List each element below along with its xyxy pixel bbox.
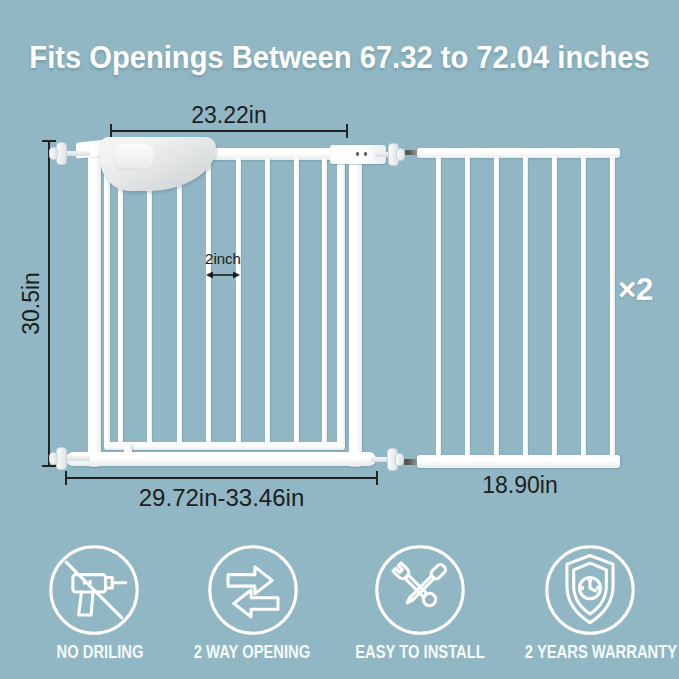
door-bottom-rail [104,442,345,450]
gate-bar [147,158,152,445]
latch-button [114,144,154,170]
gate-height-label: 30.5in [18,249,45,359]
extension-bar [465,156,470,458]
tick-right [346,124,348,138]
tick-bottom [42,465,56,467]
tick-left [65,471,67,485]
warranty-shield-icon [542,542,638,638]
gate-bottom-bar [66,452,376,466]
tick-top [42,140,56,142]
bar-gap-arrow-icon [206,270,240,280]
feature-label-no-drilling: NO DRILING [34,642,165,663]
extension-bar [494,156,499,458]
product-infographic: Fits Openings Between 67.32 to 72.04 inc… [0,0,679,679]
gate-overall-width-line [65,477,378,479]
extension-top-rail [417,148,620,158]
gate-bar [265,158,270,445]
tick-left [110,124,112,138]
extension-width-label: 18.90in [430,472,610,499]
quantity-label: ×2 [618,272,653,308]
feature-label-warranty: 2 YEARS WARRANTY [525,642,660,663]
mount-cap [49,147,58,160]
gate-bar [118,158,123,445]
door-left-stile [104,158,110,446]
mount-cap [395,453,404,466]
gate-door-width-line [110,130,348,132]
hinge-dot [364,152,367,156]
extension-bar [436,156,441,458]
page-title: Fits Openings Between 67.32 to 72.04 inc… [20,40,658,76]
feature-label-easy-install: EASY TO INSTALL [354,642,485,663]
gate-door-width-label: 23.22in [110,102,348,129]
easy-install-icon [372,542,468,638]
mount-cap [49,452,58,465]
no-drilling-icon [46,542,142,638]
gate-left-post [88,149,101,467]
gate-right-post [349,150,362,467]
gate-bar [177,158,182,445]
two-way-opening-icon [205,542,301,638]
gate-bar [206,158,211,445]
feature-label-two-way: 2 WAY OPENING [186,642,317,663]
gate-bar [322,158,327,445]
extension-bar [610,156,615,458]
extension-bottom-rail [417,455,620,468]
bar-gap-label: 2inch [195,250,251,267]
gate-bar [294,158,299,445]
mount-cap [396,148,405,161]
extension-bar [523,156,528,458]
door-right-stile [337,158,345,446]
tick-right [376,471,378,485]
extension-bar [581,156,586,458]
hinge-dot [356,152,359,156]
gate-height-line [48,140,50,467]
gate-bar [236,158,241,445]
extension-bar [552,156,557,458]
gate-overall-width-label: 29.72in-33.46in [65,484,378,512]
